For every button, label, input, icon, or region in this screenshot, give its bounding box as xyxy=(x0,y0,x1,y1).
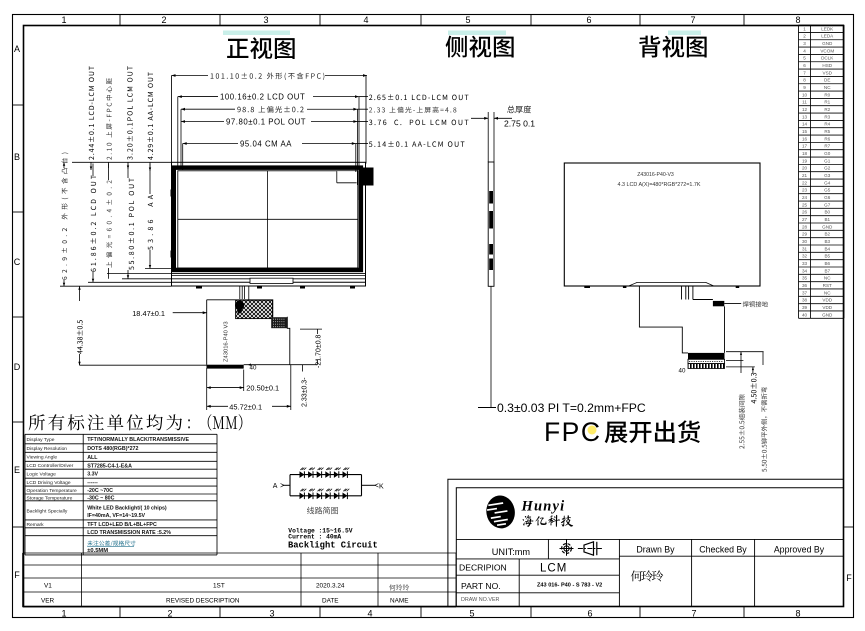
svg-text:R2: R2 xyxy=(824,107,830,112)
svg-text:8: 8 xyxy=(803,78,806,83)
svg-text:15: 15 xyxy=(802,129,808,134)
svg-text:A: A xyxy=(14,44,20,54)
svg-text:GND: GND xyxy=(822,312,833,317)
svg-text:B7: B7 xyxy=(824,268,830,273)
svg-text:5: 5 xyxy=(803,56,806,61)
svg-text:8: 8 xyxy=(795,609,800,619)
svg-text:34: 34 xyxy=(802,268,808,273)
svg-text:Z43016-P40-V3: Z43016-P40-V3 xyxy=(637,172,674,178)
svg-text:LEDA: LEDA xyxy=(821,34,834,39)
svg-text:30: 30 xyxy=(802,239,808,244)
svg-text:G6: G6 xyxy=(824,195,831,200)
svg-text:Viewing Angle: Viewing Angle xyxy=(27,455,58,461)
svg-text:Z43016-P40 V3: Z43016-P40 V3 xyxy=(224,321,230,362)
svg-text:D: D xyxy=(14,362,21,372)
svg-text:Logic Voltage: Logic Voltage xyxy=(27,472,57,478)
svg-text:B3: B3 xyxy=(824,239,830,244)
svg-text:27: 27 xyxy=(802,217,808,222)
svg-text:1ST: 1ST xyxy=(213,583,225,590)
svg-text:Z43 016- P40 - S 783 - V2: Z43 016- P40 - S 783 - V2 xyxy=(537,583,602,589)
svg-text:Display Type: Display Type xyxy=(27,437,55,443)
svg-text:LCD Driving Voltage: LCD Driving Voltage xyxy=(27,480,71,486)
svg-text:9: 9 xyxy=(803,85,806,90)
svg-text:R4: R4 xyxy=(824,122,830,127)
svg-text:37: 37 xyxy=(802,290,808,295)
svg-text:B1: B1 xyxy=(824,217,830,222)
svg-text:GND: GND xyxy=(822,41,833,46)
svg-text:36: 36 xyxy=(802,283,808,288)
svg-text:5: 5 xyxy=(469,609,474,619)
svg-text:17: 17 xyxy=(802,144,808,149)
svg-text:Backlight Circuit: Backlight Circuit xyxy=(288,541,378,551)
svg-text:NAME: NAME xyxy=(390,598,408,605)
svg-text:R3: R3 xyxy=(824,114,830,119)
svg-text:B6: B6 xyxy=(824,261,830,266)
svg-text:4: 4 xyxy=(367,609,372,619)
svg-text:6: 6 xyxy=(803,63,806,68)
svg-text:VCOM: VCOM xyxy=(820,48,834,53)
svg-text:4: 4 xyxy=(363,15,368,25)
svg-text:DOTS 480(RGB)*272: DOTS 480(RGB)*272 xyxy=(87,446,138,452)
svg-text:6: 6 xyxy=(587,609,592,619)
svg-text:10: 10 xyxy=(802,92,808,97)
svg-text:Operation Temperature: Operation Temperature xyxy=(27,488,77,494)
svg-text:33: 33 xyxy=(802,261,808,266)
svg-text:18.47±0.1: 18.47±0.1 xyxy=(132,309,165,318)
svg-text:24: 24 xyxy=(802,195,808,200)
svg-text:4.3 LCD A(X)=480*RGB*272=1.7K: 4.3 LCD A(X)=480*RGB*272=1.7K xyxy=(617,182,700,188)
svg-text:E: E xyxy=(14,465,20,475)
svg-text:DECRIPION: DECRIPION xyxy=(459,563,507,573)
svg-text:K: K xyxy=(379,484,384,491)
svg-text:2: 2 xyxy=(803,34,806,39)
svg-text:Approved By: Approved By xyxy=(774,545,825,555)
svg-text:28: 28 xyxy=(802,224,808,229)
svg-text:-20C ~70C: -20C ~70C xyxy=(87,488,113,494)
svg-text:TFT LCD+LED B/L+BL+FPC: TFT LCD+LED B/L+BL+FPC xyxy=(87,522,157,528)
svg-text:40: 40 xyxy=(802,312,808,317)
svg-text:Remark: Remark xyxy=(27,522,45,528)
svg-text:5: 5 xyxy=(465,15,470,25)
svg-text:VDD: VDD xyxy=(822,305,832,310)
svg-text:B0: B0 xyxy=(824,210,830,215)
svg-text:LEDK: LEDK xyxy=(821,26,834,31)
svg-text:100.16±0.2 LCD OUT: 100.16±0.2 LCD OUT xyxy=(220,93,305,102)
svg-text:DE: DE xyxy=(824,78,830,83)
svg-text:32: 32 xyxy=(802,254,808,259)
svg-text:39: 39 xyxy=(802,305,808,310)
svg-text:RST: RST xyxy=(823,283,832,288)
svg-text:GND: GND xyxy=(822,224,833,229)
svg-text:3: 3 xyxy=(269,609,274,619)
svg-text:1: 1 xyxy=(61,15,66,25)
svg-text:11: 11 xyxy=(802,100,807,105)
svg-text:2.75 0.1: 2.75 0.1 xyxy=(504,119,535,129)
svg-text:NC: NC xyxy=(824,276,831,281)
svg-text:18: 18 xyxy=(802,151,808,156)
svg-text:22: 22 xyxy=(802,180,808,185)
svg-text:VER: VER xyxy=(41,598,55,605)
svg-text:F: F xyxy=(846,573,852,583)
svg-text:FPC: FPC xyxy=(544,417,602,447)
svg-text:DCLK: DCLK xyxy=(821,56,834,61)
svg-text:95.04 CM AA: 95.04 CM AA xyxy=(240,140,292,149)
svg-text:8: 8 xyxy=(795,15,800,25)
svg-text:7: 7 xyxy=(690,15,695,25)
svg-text:C: C xyxy=(14,257,21,267)
svg-text:Checked By: Checked By xyxy=(699,545,747,555)
svg-text:G7: G7 xyxy=(824,202,831,207)
svg-text:R5: R5 xyxy=(824,129,830,134)
svg-text:UNIT:mm: UNIT:mm xyxy=(492,547,531,557)
svg-text:HSD: HSD xyxy=(822,63,832,68)
svg-text:ALL: ALL xyxy=(87,455,98,461)
svg-text:20: 20 xyxy=(802,166,808,171)
svg-text:23: 23 xyxy=(802,188,808,193)
svg-text:VDD: VDD xyxy=(822,298,832,303)
svg-text:B4: B4 xyxy=(824,246,830,251)
svg-text:NC: NC xyxy=(824,290,831,295)
svg-text:R0: R0 xyxy=(824,92,830,97)
svg-text:G1: G1 xyxy=(824,158,831,163)
svg-text:6: 6 xyxy=(586,15,591,25)
svg-text:13: 13 xyxy=(802,114,808,119)
svg-text:26: 26 xyxy=(802,210,808,215)
svg-text:Hunyi: Hunyi xyxy=(521,499,566,515)
svg-text:VSD: VSD xyxy=(823,70,833,75)
svg-text:REVISED DESCRIPTION: REVISED DESCRIPTION xyxy=(166,598,240,605)
svg-text:40: 40 xyxy=(250,365,257,372)
svg-text:97.80±0.1 POL OUT: 97.80±0.1 POL OUT xyxy=(226,118,306,127)
svg-text:25: 25 xyxy=(802,202,808,207)
svg-text:F: F xyxy=(14,570,20,580)
svg-text:2: 2 xyxy=(161,15,166,25)
svg-text:20.50±0.1: 20.50±0.1 xyxy=(246,384,279,393)
svg-text:Current : 40mA: Current : 40mA xyxy=(288,534,341,541)
svg-text:-21.70±0.8: -21.70±0.8 xyxy=(316,334,323,368)
svg-text:0.3±0.03 PI T=0.2mm+FPC: 0.3±0.03 PI T=0.2mm+FPC xyxy=(497,401,646,415)
svg-text:Display Resolution: Display Resolution xyxy=(27,446,68,452)
svg-text:LCM: LCM xyxy=(540,563,567,575)
svg-text:1: 1 xyxy=(61,609,66,619)
svg-text:TFT/NORMALLY BLACK/TRANSMISSIV: TFT/NORMALLY BLACK/TRANSMISSIVE xyxy=(87,437,189,443)
svg-text:R6: R6 xyxy=(824,136,830,141)
svg-text:38: 38 xyxy=(802,298,808,303)
svg-text:PART NO.: PART NO. xyxy=(461,581,501,591)
svg-text:45.72±0.1: 45.72±0.1 xyxy=(229,403,262,412)
svg-text:------: ------ xyxy=(87,480,98,486)
svg-text:White LED Backlight/( 10 chips: White LED Backlight/( 10 chips) xyxy=(87,506,167,512)
svg-text:19: 19 xyxy=(802,158,808,163)
svg-text:3.3V: 3.3V xyxy=(87,472,98,478)
svg-text:B2: B2 xyxy=(824,232,830,237)
svg-text:3: 3 xyxy=(263,15,268,25)
svg-text:V1: V1 xyxy=(44,583,52,590)
svg-text:B5: B5 xyxy=(824,254,830,259)
svg-text:21: 21 xyxy=(802,173,808,178)
svg-text:35: 35 xyxy=(802,276,808,281)
svg-text:B: B xyxy=(14,152,20,162)
svg-text:G3: G3 xyxy=(824,173,831,178)
svg-text:G0: G0 xyxy=(824,151,831,156)
svg-text:4: 4 xyxy=(803,48,806,53)
svg-text:2020.3.24: 2020.3.24 xyxy=(316,583,345,590)
svg-text:16: 16 xyxy=(802,136,808,141)
svg-text:Backlight Specially: Backlight Specially xyxy=(27,508,68,514)
svg-text:Drawn By: Drawn By xyxy=(636,545,675,555)
svg-text:-30C ~ 80C: -30C ~ 80C xyxy=(87,495,114,501)
svg-text:29: 29 xyxy=(802,232,808,237)
svg-text:2.33±0.3-: 2.33±0.3- xyxy=(302,377,309,407)
svg-text:31: 31 xyxy=(802,246,808,251)
svg-text:3: 3 xyxy=(803,41,806,46)
svg-text:ST7285-C4-1-E&A: ST7285-C4-1-E&A xyxy=(87,463,132,469)
svg-text:12: 12 xyxy=(802,107,808,112)
svg-text:G4: G4 xyxy=(824,180,831,185)
svg-text:Storage Temperature: Storage Temperature xyxy=(27,495,73,501)
svg-text:IF=40mA, VF=14~19.5V: IF=40mA, VF=14~19.5V xyxy=(87,513,145,519)
svg-text:R1: R1 xyxy=(824,100,830,105)
svg-text:R7: R7 xyxy=(824,144,830,149)
svg-text:14: 14 xyxy=(802,122,808,127)
svg-text:A: A xyxy=(273,483,278,490)
svg-text:LCD TRANSMISSION RATE :5.2%: LCD TRANSMISSION RATE :5.2% xyxy=(87,530,171,536)
svg-text:G2: G2 xyxy=(824,166,831,171)
svg-text:7: 7 xyxy=(691,609,696,619)
svg-text:DRAW NO.VER: DRAW NO.VER xyxy=(461,597,500,603)
svg-text:7: 7 xyxy=(803,70,806,75)
svg-text:DATE: DATE xyxy=(322,598,339,605)
svg-text:LCD Controller/Driver: LCD Controller/Driver xyxy=(27,463,74,469)
svg-text:NC: NC xyxy=(824,85,831,90)
svg-text:2: 2 xyxy=(167,609,172,619)
svg-text:G5: G5 xyxy=(824,188,831,193)
svg-text:40: 40 xyxy=(679,368,686,375)
svg-text:1: 1 xyxy=(803,26,806,31)
